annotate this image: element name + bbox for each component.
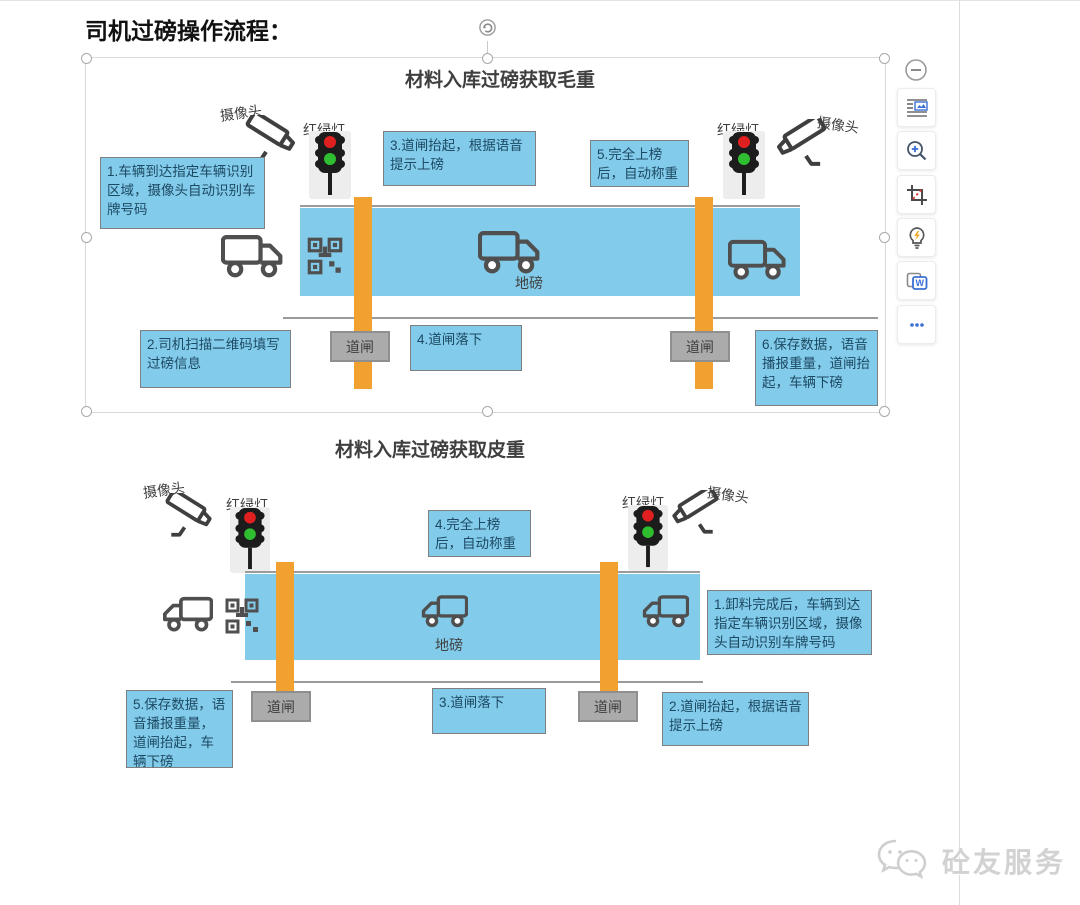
- step-box: 4.道闸落下: [410, 325, 522, 371]
- svg-text:W: W: [915, 278, 924, 288]
- step-box: 2.道闸抬起，根据语音提示上磅: [662, 692, 809, 746]
- step-box: 5.保存数据，语音播报重量，道闸抬起，车辆下磅: [126, 690, 233, 768]
- truck-icon: [478, 229, 542, 275]
- wechat-icon: [876, 837, 936, 885]
- qr-code-icon: [307, 234, 343, 278]
- weighbridge-road: [300, 208, 800, 296]
- minus-icon: [904, 58, 928, 82]
- step-box: 4.完全上榜后，自动称重: [428, 510, 531, 557]
- truck-icon: [221, 233, 285, 279]
- cctv-camera-icon: [767, 119, 829, 175]
- road-edge-bottom: [283, 317, 878, 319]
- road-edge-bottom: [231, 681, 703, 683]
- traffic-light-icon: [230, 507, 270, 573]
- crop-button[interactable]: [897, 175, 936, 214]
- traffic-light-icon: [628, 505, 668, 571]
- collapse-minus-button[interactable]: [904, 58, 928, 82]
- road-edge-top: [300, 205, 800, 207]
- barrier-bar-left: [276, 562, 294, 694]
- extract-doc-button[interactable]: W: [897, 261, 936, 300]
- step-box: 3.道闸落下: [432, 688, 546, 734]
- qr-code-icon: [225, 595, 259, 637]
- zoom-in-icon: [905, 139, 929, 163]
- lightbulb-lightning-icon: [905, 226, 929, 250]
- gate-label: 道闸: [330, 331, 390, 362]
- page-title: 司机过磅操作流程：: [85, 12, 292, 46]
- barrier-bar-right: [600, 562, 618, 700]
- truck-icon: [161, 593, 213, 635]
- more-button[interactable]: [897, 305, 936, 344]
- step-box: 2.司机扫描二维码填写过磅信息: [140, 330, 291, 388]
- zoom-in-button[interactable]: [897, 131, 936, 170]
- diagram2-title: 材料入库过磅获取皮重: [335, 435, 525, 462]
- gate-label: 道闸: [670, 331, 730, 362]
- page-right-edge: [959, 0, 960, 905]
- scale-label: 地磅: [515, 273, 543, 293]
- gate-label: 道闸: [578, 691, 638, 722]
- footer-logo-text: 砼友服务: [942, 841, 1066, 881]
- diagram1-title: 材料入库过磅获取毛重: [405, 65, 595, 92]
- traffic-light-icon: [309, 131, 351, 199]
- more-dots-icon: [905, 313, 929, 337]
- diagram1[interactable]: 材料入库过磅获取毛重 摄像头 红绿灯 1.车辆到达指定车辆识别区域，摄像头自: [85, 57, 884, 411]
- crop-icon: [905, 183, 929, 207]
- cctv-camera-icon: [663, 490, 721, 542]
- cctv-camera-icon: [163, 493, 221, 545]
- truck-icon: [728, 238, 788, 281]
- smart-tips-button[interactable]: [897, 218, 936, 257]
- gate-label: 道闸: [251, 691, 311, 722]
- weighbridge-road: [245, 574, 700, 660]
- window-top-edge: [0, 0, 1080, 1]
- traffic-light-icon: [723, 131, 765, 199]
- footer-logo: 砼友服务: [876, 836, 1076, 886]
- rotate-icon: [479, 19, 496, 36]
- road-edge-top: [245, 571, 700, 573]
- step-box: 6.保存数据，语音播报重量，道闸抬起，车辆下磅: [755, 330, 878, 406]
- text-wrap-icon: [905, 96, 929, 120]
- diagram2[interactable]: 材料入库过磅获取皮重 摄像头 红绿灯 4.完全上榜后，自动称重: [85, 425, 884, 785]
- scale-label: 地磅: [435, 635, 463, 655]
- extract-doc-icon: W: [905, 269, 929, 293]
- truck-icon: [420, 591, 468, 631]
- text-wrap-button[interactable]: [897, 88, 936, 127]
- step-box: 1.车辆到达指定车辆识别区域，摄像头自动识别车牌号码: [100, 157, 265, 229]
- step-box: 3.道闸抬起，根据语音提示上磅: [383, 131, 536, 186]
- step-box: 1.卸料完成后，车辆到达指定车辆识别区域，摄像头自动识别车牌号码: [707, 590, 872, 655]
- step-box: 5.完全上榜后，自动称重: [590, 140, 689, 187]
- truck-icon: [641, 591, 689, 631]
- rotate-handle[interactable]: [479, 19, 496, 36]
